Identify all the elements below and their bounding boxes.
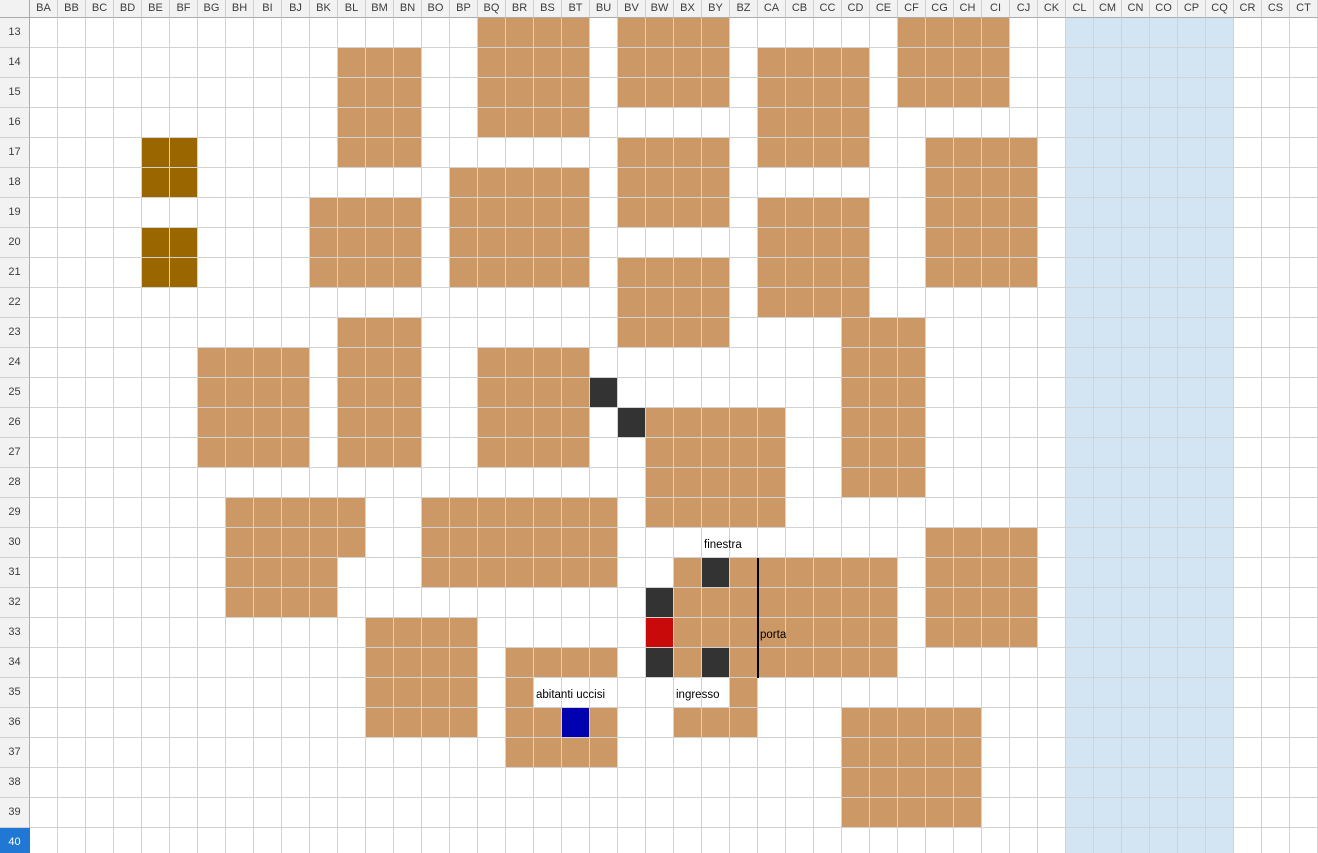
building[interactable]	[226, 498, 366, 558]
row-header-20[interactable]: 20	[0, 228, 30, 258]
dark-cell[interactable]	[702, 558, 730, 588]
building[interactable]	[506, 678, 534, 708]
dark-cell[interactable]	[646, 648, 674, 678]
building[interactable]	[618, 258, 730, 348]
column-header-BM[interactable]: BM	[366, 0, 394, 18]
row-headers: 1314151617181920212223242526272829303132…	[0, 18, 30, 853]
building[interactable]	[758, 198, 870, 318]
row-header-18[interactable]: 18	[0, 168, 30, 198]
building[interactable]	[338, 318, 422, 468]
column-header-BF[interactable]: BF	[170, 0, 198, 18]
column-header-CF[interactable]: CF	[898, 0, 926, 18]
column-header-CC[interactable]: CC	[814, 0, 842, 18]
row-header-17[interactable]: 17	[0, 138, 30, 168]
building[interactable]	[618, 138, 730, 228]
row-header-32[interactable]: 32	[0, 588, 30, 618]
building[interactable]	[646, 408, 786, 528]
building[interactable]	[758, 48, 870, 168]
building[interactable]	[366, 618, 478, 738]
lake-region[interactable]	[1066, 18, 1234, 853]
column-header-BL[interactable]: BL	[338, 0, 366, 18]
column-header-BB[interactable]: BB	[58, 0, 86, 18]
row-header-38[interactable]: 38	[0, 768, 30, 798]
row-header-40-selected[interactable]: 40	[0, 828, 30, 853]
building[interactable]	[674, 558, 702, 588]
row-header-26[interactable]: 26	[0, 408, 30, 438]
row-header-34[interactable]: 34	[0, 648, 30, 678]
olive-block[interactable]	[142, 138, 198, 198]
row-header-28[interactable]: 28	[0, 468, 30, 498]
column-header-BG[interactable]: BG	[198, 0, 226, 18]
building[interactable]	[730, 678, 758, 708]
row-header-16[interactable]: 16	[0, 108, 30, 138]
row-header-19[interactable]: 19	[0, 198, 30, 228]
column-header-BZ[interactable]: BZ	[730, 0, 758, 18]
row-header-36[interactable]: 36	[0, 708, 30, 738]
building[interactable]	[226, 558, 338, 618]
column-header-BI[interactable]: BI	[254, 0, 282, 18]
building[interactable]	[618, 18, 730, 108]
red-cell[interactable]	[646, 618, 674, 648]
column-header-BO[interactable]: BO	[422, 0, 450, 18]
column-header-CP[interactable]: CP	[1178, 0, 1206, 18]
navy-cell[interactable]	[562, 708, 590, 738]
map-label-abitanti-uccisi: abitanti uccisi	[536, 678, 605, 708]
building[interactable]	[730, 558, 898, 678]
building[interactable]	[478, 18, 590, 138]
column-header-CG[interactable]: CG	[926, 0, 954, 18]
dark-cell[interactable]	[702, 648, 730, 678]
column-header-CN[interactable]: CN	[1122, 0, 1150, 18]
column-header-BX[interactable]: BX	[674, 0, 702, 18]
column-header-CE[interactable]: CE	[870, 0, 898, 18]
column-header-CQ[interactable]: CQ	[1206, 0, 1234, 18]
column-header-CS[interactable]: CS	[1262, 0, 1290, 18]
column-header-BN[interactable]: BN	[394, 0, 422, 18]
building[interactable]	[450, 168, 590, 288]
column-header-BD[interactable]: BD	[114, 0, 142, 18]
column-header-CD[interactable]: CD	[842, 0, 870, 18]
building[interactable]	[338, 48, 422, 168]
row-header-23[interactable]: 23	[0, 318, 30, 348]
column-header-BH[interactable]: BH	[226, 0, 254, 18]
dark-cell[interactable]	[646, 588, 674, 618]
column-header-CH[interactable]: CH	[954, 0, 982, 18]
column-header-BE[interactable]: BE	[142, 0, 170, 18]
building[interactable]	[198, 348, 310, 468]
row-header-29[interactable]: 29	[0, 498, 30, 528]
column-header-BY[interactable]: BY	[702, 0, 730, 18]
column-header-BC[interactable]: BC	[86, 0, 114, 18]
column-header-BJ[interactable]: BJ	[282, 0, 310, 18]
building[interactable]	[422, 498, 618, 588]
dark-cell[interactable]	[618, 408, 646, 438]
column-header-CI[interactable]: CI	[982, 0, 1010, 18]
building[interactable]	[674, 708, 758, 738]
column-header-BR[interactable]: BR	[506, 0, 534, 18]
column-headers: BABBBCBDBEBFBGBHBIBJBKBLBMBNBOBPBQBRBSBT…	[30, 0, 1318, 18]
row-header-35[interactable]: 35	[0, 678, 30, 708]
row-header-30[interactable]: 30	[0, 528, 30, 558]
row-header-31[interactable]: 31	[0, 558, 30, 588]
olive-block[interactable]	[142, 228, 198, 288]
door-boundary-line	[757, 558, 759, 678]
building[interactable]	[674, 648, 702, 678]
column-header-BU[interactable]: BU	[590, 0, 618, 18]
column-header-BP[interactable]: BP	[450, 0, 478, 18]
building[interactable]	[590, 708, 618, 738]
building[interactable]	[674, 588, 730, 648]
column-header-BW[interactable]: BW	[646, 0, 674, 18]
row-header-33[interactable]: 33	[0, 618, 30, 648]
building[interactable]	[478, 348, 590, 468]
row-header-15[interactable]: 15	[0, 78, 30, 108]
column-header-CR[interactable]: CR	[1234, 0, 1262, 18]
building[interactable]	[898, 18, 1010, 108]
spreadsheet-app: BABBBCBDBEBFBGBHBIBJBKBLBMBNBOBPBQBRBSBT…	[0, 0, 1318, 853]
column-header-CA[interactable]: CA	[758, 0, 786, 18]
dark-cell[interactable]	[590, 378, 618, 408]
building[interactable]	[506, 708, 562, 738]
column-header-BV[interactable]: BV	[618, 0, 646, 18]
column-header-BA[interactable]: BA	[30, 0, 58, 18]
map-label-ingresso: ingresso	[676, 678, 719, 708]
map-label-finestra: finestra	[704, 528, 742, 558]
row-header-39[interactable]: 39	[0, 798, 30, 828]
row-header-25[interactable]: 25	[0, 378, 30, 408]
building[interactable]	[506, 648, 618, 678]
column-header-CL[interactable]: CL	[1066, 0, 1094, 18]
row-header-37[interactable]: 37	[0, 738, 30, 768]
row-header-14[interactable]: 14	[0, 48, 30, 78]
column-header-CJ[interactable]: CJ	[1010, 0, 1038, 18]
column-header-CT[interactable]: CT	[1290, 0, 1318, 18]
column-header-BT[interactable]: BT	[562, 0, 590, 18]
map-label-porta: porta	[760, 618, 786, 648]
select-all-corner[interactable]	[0, 0, 30, 18]
building[interactable]	[506, 738, 618, 768]
column-header-CO[interactable]: CO	[1150, 0, 1178, 18]
building[interactable]	[842, 318, 926, 498]
row-header-27[interactable]: 27	[0, 438, 30, 468]
column-header-BQ[interactable]: BQ	[478, 0, 506, 18]
row-header-13[interactable]: 13	[0, 18, 30, 48]
row-header-21[interactable]: 21	[0, 258, 30, 288]
column-header-BS[interactable]: BS	[534, 0, 562, 18]
building[interactable]	[926, 138, 1038, 288]
sheet-grid[interactable]: finestraportaingressoabitanti uccisi	[30, 18, 1318, 853]
column-header-BK[interactable]: BK	[310, 0, 338, 18]
building[interactable]	[310, 198, 422, 288]
building[interactable]	[926, 528, 1038, 648]
column-header-CK[interactable]: CK	[1038, 0, 1066, 18]
row-header-22[interactable]: 22	[0, 288, 30, 318]
column-header-CB[interactable]: CB	[786, 0, 814, 18]
building[interactable]	[842, 708, 982, 828]
column-header-CM[interactable]: CM	[1094, 0, 1122, 18]
row-header-24[interactable]: 24	[0, 348, 30, 378]
